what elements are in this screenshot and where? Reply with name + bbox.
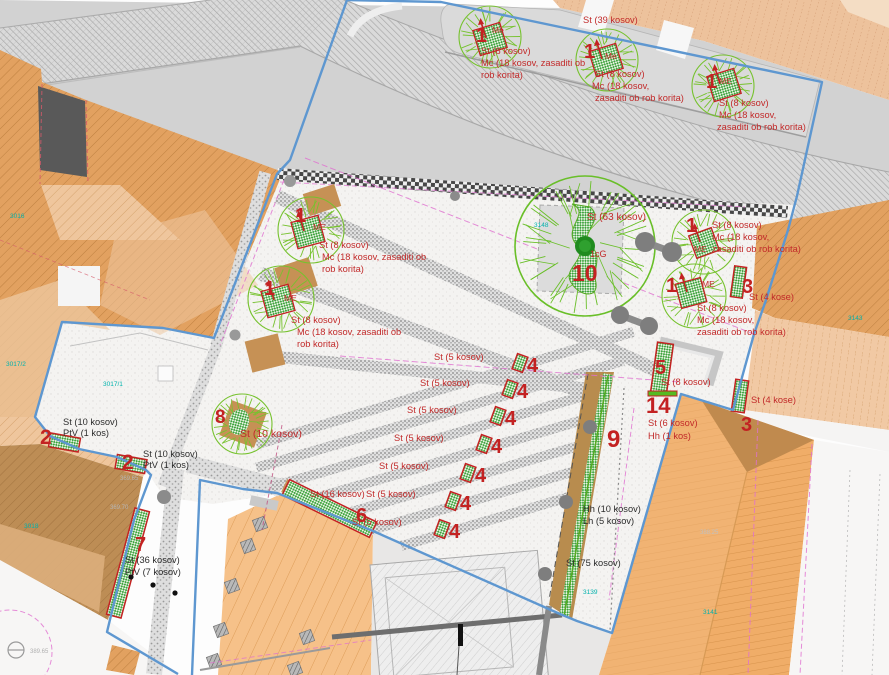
svg-text:zasaditi ob rob korita): zasaditi ob rob korita) bbox=[712, 244, 801, 254]
svg-text:rob korita): rob korita) bbox=[297, 339, 339, 349]
svg-text:3141: 3141 bbox=[703, 609, 718, 616]
svg-text:3017/2: 3017/2 bbox=[6, 361, 26, 368]
svg-text:2: 2 bbox=[40, 426, 52, 449]
svg-text:10: 10 bbox=[572, 260, 598, 286]
svg-text:Lh (5 kosov): Lh (5 kosov) bbox=[583, 516, 634, 526]
svg-text:3016: 3016 bbox=[10, 213, 25, 220]
svg-text:1: 1 bbox=[264, 278, 275, 300]
svg-text:Mc (18 kosov, zasaditi ob: Mc (18 kosov, zasaditi ob bbox=[481, 58, 585, 68]
svg-text:2: 2 bbox=[122, 451, 134, 474]
svg-text:St (10 kosov): St (10 kosov) bbox=[143, 449, 198, 459]
svg-text:3143: 3143 bbox=[848, 315, 863, 322]
svg-text:Mc (18 kosov,: Mc (18 kosov, bbox=[697, 315, 754, 325]
svg-text:4: 4 bbox=[460, 493, 472, 515]
svg-text:4: 4 bbox=[475, 465, 487, 487]
svg-text:1: 1 bbox=[666, 275, 677, 297]
svg-text:St (5 kosov): St (5 kosov) bbox=[352, 517, 402, 527]
svg-text:3017/1: 3017/1 bbox=[103, 381, 123, 388]
svg-text:St (8 kosov): St (8 kosov) bbox=[319, 240, 369, 250]
svg-text:1: 1 bbox=[706, 71, 717, 93]
svg-text:3139: 3139 bbox=[583, 589, 598, 596]
svg-text:3: 3 bbox=[741, 414, 752, 436]
svg-text:1: 1 bbox=[476, 25, 487, 47]
svg-text:St (5 kosov): St (5 kosov) bbox=[394, 433, 444, 443]
svg-text:Mc (18 kosov,: Mc (18 kosov, bbox=[719, 110, 776, 120]
svg-text:ME: ME bbox=[719, 76, 732, 86]
svg-text:1: 1 bbox=[686, 215, 697, 237]
svg-text:St (8 kosov): St (8 kosov) bbox=[697, 303, 747, 313]
svg-text:1: 1 bbox=[295, 205, 306, 227]
svg-text:ME: ME bbox=[284, 293, 297, 303]
svg-text:4: 4 bbox=[491, 436, 503, 458]
svg-text:3018: 3018 bbox=[24, 523, 39, 530]
svg-text:St (36 kosov): St (36 kosov) bbox=[125, 555, 180, 565]
svg-text:St (75 kosov): St (75 kosov) bbox=[566, 558, 621, 568]
svg-text:St (8 kosov): St (8 kosov) bbox=[481, 46, 531, 56]
svg-text:3148: 3148 bbox=[534, 222, 549, 229]
svg-text:St (8 kosov): St (8 kosov) bbox=[291, 315, 341, 325]
svg-text:PtV (1 kos): PtV (1 kos) bbox=[63, 428, 109, 438]
svg-text:PtV (7 kosov): PtV (7 kosov) bbox=[125, 567, 181, 577]
svg-text:Hh (1 kos): Hh (1 kos) bbox=[648, 431, 691, 441]
svg-text:St (8 kosov): St (8 kosov) bbox=[595, 69, 645, 79]
svg-text:St (6 kosov): St (6 kosov) bbox=[648, 418, 698, 428]
svg-text:8: 8 bbox=[215, 407, 226, 428]
svg-text:zasaditi ob rob korita): zasaditi ob rob korita) bbox=[697, 327, 786, 337]
svg-text:Mc (18 kosov,: Mc (18 kosov, bbox=[712, 232, 769, 242]
svg-text:St (8 kosov): St (8 kosov) bbox=[661, 377, 711, 387]
svg-text:St (10 kosov): St (10 kosov) bbox=[63, 417, 118, 427]
svg-text:St (5 kosov): St (5 kosov) bbox=[420, 378, 470, 388]
svg-text:zasaditi ob rob korita): zasaditi ob rob korita) bbox=[595, 93, 684, 103]
svg-text:St (4 kose): St (4 kose) bbox=[751, 395, 796, 405]
svg-text:St (63 kosov): St (63 kosov) bbox=[587, 212, 646, 223]
svg-text:7: 7 bbox=[135, 534, 146, 556]
svg-text:369.70: 369.70 bbox=[110, 505, 129, 511]
svg-text:St (39 kosov): St (39 kosov) bbox=[583, 15, 638, 25]
svg-text:4: 4 bbox=[517, 381, 529, 403]
svg-text:Hh (10 kosov): Hh (10 kosov) bbox=[583, 504, 641, 514]
svg-text:St (5 kosov): St (5 kosov) bbox=[407, 405, 457, 415]
svg-text:St (5 kosov): St (5 kosov) bbox=[366, 489, 416, 499]
svg-text:ME: ME bbox=[313, 222, 326, 232]
svg-text:Me: Me bbox=[492, 25, 504, 35]
svg-text:St (8 kosov): St (8 kosov) bbox=[719, 98, 769, 108]
svg-text:rob korita): rob korita) bbox=[481, 70, 523, 80]
svg-text:Mc (18 kosov, zasaditi ob: Mc (18 kosov, zasaditi ob bbox=[297, 327, 401, 337]
svg-text:4: 4 bbox=[449, 521, 461, 543]
svg-text:Me: Me bbox=[605, 51, 617, 61]
svg-text:5: 5 bbox=[655, 357, 666, 379]
svg-text:ME: ME bbox=[694, 244, 707, 254]
svg-text:1: 1 bbox=[584, 41, 595, 63]
svg-text:Mc (18 kosov,: Mc (18 kosov, bbox=[592, 81, 649, 91]
svg-text:1cG: 1cG bbox=[590, 249, 607, 259]
svg-text:St (5 kosov): St (5 kosov) bbox=[379, 461, 429, 471]
svg-text:St (5 kosov): St (5 kosov) bbox=[434, 352, 484, 362]
svg-text:9: 9 bbox=[607, 426, 620, 453]
svg-text:4: 4 bbox=[527, 355, 539, 377]
svg-text:PtV (1 kos): PtV (1 kos) bbox=[143, 460, 189, 470]
svg-text:369.65: 369.65 bbox=[120, 476, 139, 482]
svg-text:zasaditi ob rob korita): zasaditi ob rob korita) bbox=[717, 122, 806, 132]
svg-text:ME: ME bbox=[702, 279, 715, 289]
svg-text:4: 4 bbox=[505, 408, 517, 430]
svg-text:388.25: 388.25 bbox=[700, 530, 719, 536]
svg-text:St (16 kosov): St (16 kosov) bbox=[310, 489, 365, 499]
svg-text:14: 14 bbox=[646, 393, 671, 418]
svg-text:389.65: 389.65 bbox=[30, 649, 49, 655]
svg-text:rob korita): rob korita) bbox=[322, 264, 364, 274]
svg-text:St (4 kose): St (4 kose) bbox=[749, 292, 794, 302]
svg-text:St (10 kosov): St (10 kosov) bbox=[240, 428, 302, 440]
svg-text:Mc (18 kosov, zasaditi ob: Mc (18 kosov, zasaditi ob bbox=[322, 252, 426, 262]
svg-text:St (8 kosov): St (8 kosov) bbox=[712, 220, 762, 230]
